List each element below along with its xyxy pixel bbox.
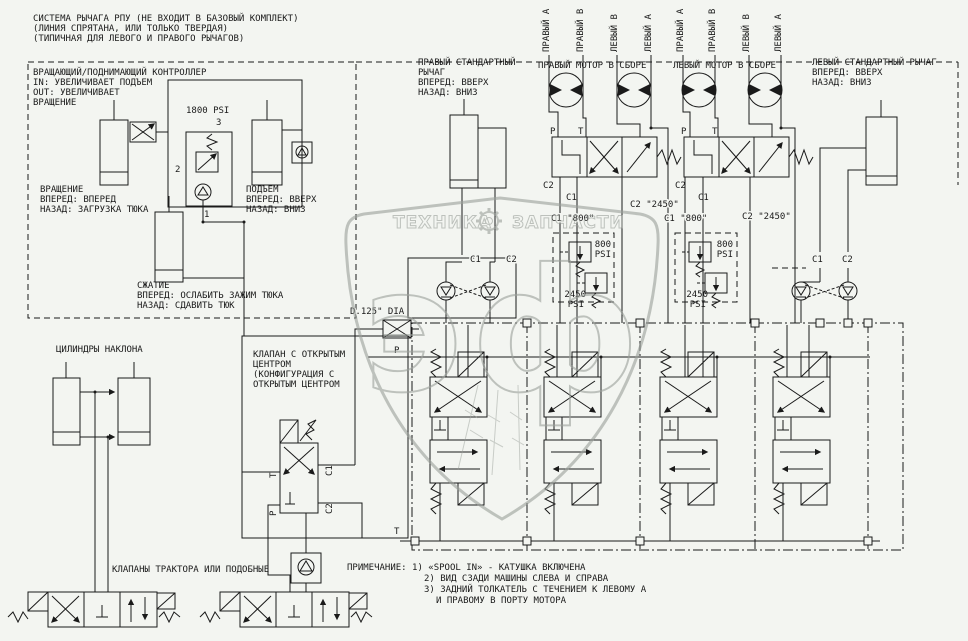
note-line2: 2) ВИД СЗАДИ МАШИНЫ СЛЕВА И СПРАВА	[424, 574, 609, 584]
controller-title2: IN: УВЕЛИЧИВАЕТ ПОДЪЕМ	[33, 78, 153, 88]
bank-valve-stack	[773, 349, 830, 541]
open-center-line1: КЛАПАН С ОТКРЫТЫМ	[253, 350, 346, 360]
right-lever-line4: НАЗАД: ВНИЗ	[418, 88, 478, 98]
rotation-label1: ВРАЩЕНИЕ	[40, 185, 83, 195]
relief-800-value: 800	[717, 240, 733, 250]
port-t-label: T	[712, 127, 718, 137]
note-line1: ПРИМЕЧАНИЕ: 1) «SPOOL IN» - КАТУШКА ВКЛЮ…	[347, 563, 586, 573]
controller-title3: OUT: УВЕЛИЧИВАЕТ	[33, 88, 120, 98]
motor-port-label-5: ПРАВЫЙ А	[674, 8, 686, 52]
motor-port-label-3: ЛЕВЫЙ В	[608, 14, 620, 52]
motor-port-label-4: ЛЕВЫЙ А	[642, 13, 654, 52]
left-standard-lever: ЛЕВЫЙ СТАНДАРТНЫЙ РЫЧАГ ВПЕРЕД: ВВЕРХ НА…	[772, 56, 937, 282]
cap-c1-800-label: C1 "800"	[664, 214, 707, 224]
right-lever-cylinder	[450, 115, 478, 188]
lift-label3: НАЗАД: ВНИЗ	[246, 205, 306, 215]
motor-port-label-1: ПРАВЫЙ А	[540, 8, 552, 52]
cap-c2-2450-label: C2 "2450"	[742, 212, 791, 222]
manifold-port-icon	[844, 319, 852, 327]
left-motor-relief-assembly: 800 PSI 2450 PSI	[675, 233, 737, 310]
manifold-t-label: T	[394, 527, 400, 537]
relief-valve-icon	[705, 273, 727, 308]
rpu-system-note: СИСТЕМА РЫЧАГА РПУ (НЕ ВХОДИТ В БАЗОВЫЙ …	[33, 12, 299, 44]
lift-label1: ПОДЪЕМ	[246, 185, 279, 195]
manifold-port-icon	[523, 537, 531, 545]
port-c2-label: C2	[543, 181, 554, 191]
tractor-check-valve	[291, 553, 321, 592]
left-lever-line2: ВПЕРЕД: ВВЕРХ	[812, 68, 883, 78]
note-line3: 3) ЗАДНИЙ ТОЛКАТЕЛЬ С ТЕЧЕНИЕМ К ЛЕВОМУ …	[424, 583, 647, 595]
squeeze-label2: ВПЕРЕД: ОСЛАБИТЬ ЗАЖИМ ТЮКА	[137, 291, 284, 301]
controller-pressure-label: 1800 PSI	[186, 106, 229, 116]
squeeze-label1: СЖАТИЕ	[137, 281, 170, 291]
watermark-word2: ЗАПЧАСТИ	[512, 213, 625, 233]
watermark: эф ТЕХНИКА ЗАПЧАСТИ	[346, 198, 658, 519]
schematic-canvas: СИСТЕМА РЫЧАГА РПУ (НЕ ВХОДИТ В БАЗОВЫЙ …	[0, 0, 968, 641]
rpu-note-line1: СИСТЕМА РЫЧАГА РПУ (НЕ ВХОДИТ В БАЗОВЫЙ …	[33, 12, 299, 24]
manifold-port-icon	[816, 319, 824, 327]
tilt-cylinders: ЦИЛИНДРЫ НАКЛОНА	[53, 345, 150, 592]
port-c2-label: C2	[675, 181, 686, 191]
right-lever-line1: ПРАВЫЙ СТАНДАРТНЫЙ	[418, 56, 516, 68]
hydraulic-motor-icon	[748, 73, 782, 107]
port-c1-label: C1	[325, 465, 335, 476]
controller-title4: ВРАЩЕНИЕ	[33, 98, 76, 108]
left-lever-check-block: C1 C2	[792, 255, 857, 323]
hydraulic-motor-icon	[682, 73, 716, 107]
lift-label2: ВПЕРЕД: ВВЕРХ	[246, 195, 317, 205]
right-lever-line3: ВПЕРЕД: ВВЕРХ	[418, 78, 489, 88]
port-1-label: 1	[204, 210, 209, 220]
left-lever-cylinder	[866, 117, 897, 185]
right-lever-line2: РЫЧАГ	[418, 68, 445, 78]
tractor-directional-valve	[200, 592, 372, 627]
rpu-note-line2: (ЛИНИЯ СПРЯТАНА, ИЛИ ТОЛЬКО ТВЕРДАЯ)	[33, 24, 228, 34]
rotation-cylinder-symbol	[100, 100, 168, 185]
port-3-label: 3	[216, 118, 221, 128]
open-center-line4: ОТКРЫТЫМ ЦЕНТРОМ	[253, 380, 340, 390]
squeeze-label3: НАЗАД: СДАВИТЬ ТЮК	[137, 301, 235, 311]
manifold-port-icon	[864, 537, 872, 545]
open-center-line3: (КОНФИГУРАЦИЯ С	[253, 370, 334, 380]
rpu-note-line3: (ТИПИЧНАЯ ДЛЯ ЛЕВОГО И ПРАВОГО РЫЧАГОВ)	[33, 34, 244, 44]
left-motor-title: ЛЕВЫЙ МОТОР В СБОРЕ	[673, 59, 776, 71]
pilot-check-valve-icon	[839, 282, 857, 300]
relief-valve-icon	[689, 242, 711, 277]
port-t-label: T	[269, 472, 279, 478]
left-lever-line1: ЛЕВЫЙ СТАНДАРТНЫЙ РЫЧАГ	[812, 56, 937, 68]
manifold-port-icon	[411, 537, 419, 545]
tractor-directional-valve	[8, 592, 180, 627]
motor-port-label-2: ПРАВЫЙ В	[574, 9, 586, 52]
squeeze-cylinder-symbol	[155, 196, 244, 336]
port-2-label: 2	[175, 165, 180, 175]
hydraulic-motor-icon	[617, 73, 651, 107]
port-c1-label: C1	[566, 193, 577, 203]
manifold-port-icon	[751, 319, 759, 327]
watermark-word1: ТЕХНИКА	[393, 213, 492, 233]
bank-valve-stack	[660, 349, 717, 541]
open-center-line2: ЦЕНТРОМ	[253, 360, 292, 370]
hydraulic-motor-icon	[549, 73, 583, 107]
hydraulic-schematic: СИСТЕМА РЫЧАГА РПУ (НЕ ВХОДИТ В БАЗОВЫЙ …	[0, 0, 968, 641]
port-p-label: P	[550, 127, 556, 137]
relief-800-psi: PSI	[717, 250, 733, 260]
port-p-label: P	[681, 127, 687, 137]
port-c2-label: C2	[842, 255, 853, 265]
motor-port-label-8: ЛЕВЫЙ А	[772, 13, 784, 52]
port-c2-label: C2	[325, 503, 335, 514]
notes-block: ПРИМЕЧАНИЕ: 1) «SPOOL IN» - КАТУШКА ВКЛЮ…	[347, 563, 647, 606]
tractor-valves-label: КЛАПАНЫ ТРАКТОРА ИЛИ ПОДОБНЫЕ	[112, 565, 269, 575]
note-line4: И ПРАВОМУ В ПОРТУ МОТОРА	[436, 596, 567, 606]
right-motor-title: ПРАВЫЙ МОТОР В СБОРЕ	[538, 59, 646, 71]
relief-2450-psi: PSI	[690, 300, 706, 310]
lift-cylinder-symbol	[252, 100, 312, 185]
manifold-port-icon	[636, 537, 644, 545]
rotation-label3: НАЗАД: ЗАГРУЗКА ТЮКА	[40, 205, 149, 215]
cap-c2-2450-label: C2 "2450"	[630, 200, 679, 210]
rotation-label2: ВПЕРЕД: ВПЕРЕД	[40, 195, 116, 205]
motor-port-label-6: ПРАВЫЙ В	[706, 9, 718, 52]
manifold-port-icon	[864, 319, 872, 327]
port-c1-label: C1	[812, 255, 823, 265]
port-p-label: P	[269, 510, 279, 516]
controller-title1: ВРАЩАЮЩИЙ/ПОДНИМАЮЩИЙ КОНТРОЛЛЕР	[33, 66, 207, 78]
port-t-label: T	[578, 127, 584, 137]
left-lever-line3: НАЗАД: ВНИЗ	[812, 78, 872, 88]
tilt-cylinders-label: ЦИЛИНДРЫ НАКЛОНА	[56, 345, 143, 355]
watermark-monogram: эф	[362, 233, 647, 431]
motor-port-label-7: ЛЕВЫЙ В	[740, 14, 752, 52]
